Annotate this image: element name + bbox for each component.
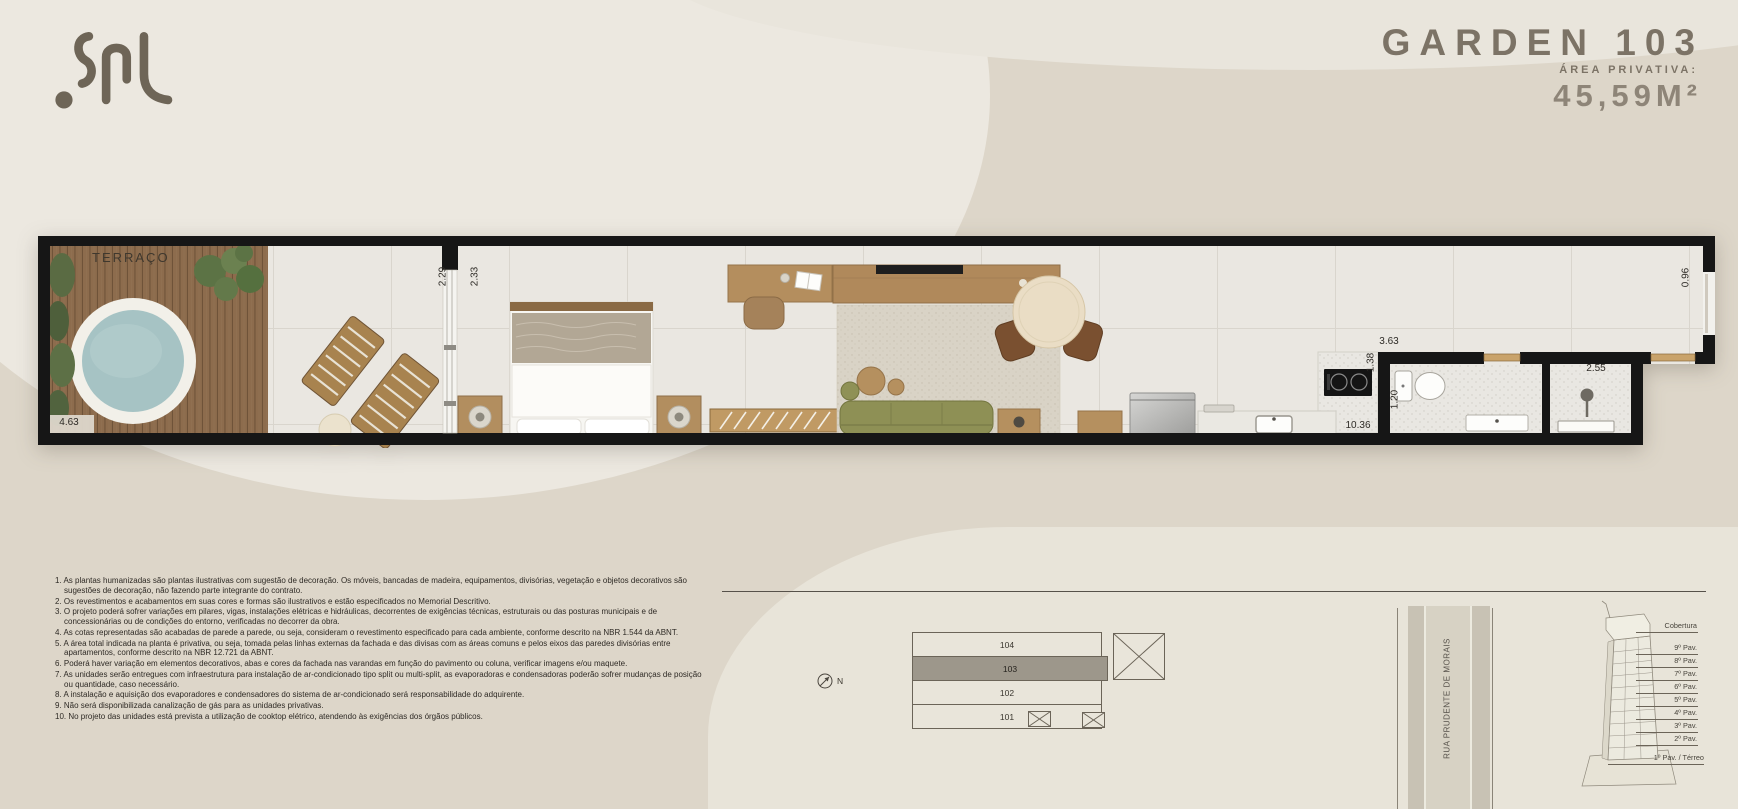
bathroom-door xyxy=(1484,354,1520,361)
north-arrow-icon xyxy=(816,672,834,690)
north-label: N xyxy=(837,676,843,686)
book xyxy=(795,271,822,290)
floor-label: 7º Pav. xyxy=(1636,668,1698,681)
note-item: 9. Não será disponibilizada canalização … xyxy=(55,701,710,711)
bed xyxy=(510,302,653,438)
page-title: GARDEN 103 xyxy=(1382,22,1704,64)
floor-label: 4º Pav. xyxy=(1636,707,1698,720)
washer xyxy=(1558,421,1614,432)
note-item: 6. Poderá haver variação em elementos de… xyxy=(55,659,710,669)
dimension-shower-width: 2.55 xyxy=(1578,363,1614,374)
tray xyxy=(1204,405,1234,412)
floor-label: 5º Pav. xyxy=(1636,694,1698,707)
note-item: 4. As cotas representadas são acabadas d… xyxy=(55,628,710,638)
fridge xyxy=(1130,393,1195,435)
shaft-icon xyxy=(1028,711,1051,727)
disclaimer-notes: 1. As plantas humanizadas são plantas il… xyxy=(55,576,710,723)
dimension-kitchen-depth: 1.38 xyxy=(1366,349,1377,377)
floor-label: 9º Pav. xyxy=(1636,642,1698,655)
area-label: ÁREA PRIVATIVA: xyxy=(1559,64,1698,76)
dimension-terrace-door-left: 2.29 xyxy=(438,263,449,291)
terrace-label: TERRAÇO xyxy=(92,250,170,265)
floor-label: 3º Pav. xyxy=(1636,720,1698,733)
street-edge-line xyxy=(1492,608,1493,809)
desk-chair xyxy=(744,297,784,329)
coffee-table xyxy=(857,367,885,395)
street-name: RUA PRUDENTE DE MORAIS xyxy=(1443,599,1452,799)
floor-labels: Cobertura 9º Pav. 8º Pav. 7º Pav. 6º Pav… xyxy=(1636,620,1698,746)
keyplan-unit-102: 102 xyxy=(912,680,1102,705)
note-item: 10. No projeto das unidades está previst… xyxy=(55,712,710,722)
floor-label: 6º Pav. xyxy=(1636,681,1698,694)
dimension-terrace-door-right: 2.33 xyxy=(470,263,481,291)
side-table-lamp xyxy=(998,409,1040,435)
sal-logo xyxy=(52,26,174,112)
kitchen-cabinet xyxy=(1078,411,1122,435)
stool xyxy=(888,379,904,395)
floor-label: 2º Pav. xyxy=(1636,733,1698,746)
nightstand xyxy=(657,396,701,438)
entry-door xyxy=(1703,272,1715,335)
keyplan-unit-104: 104 xyxy=(912,632,1102,657)
shaft-icon xyxy=(1082,712,1105,728)
glass-sliding-door xyxy=(443,270,457,433)
pouf xyxy=(841,382,859,400)
toilet xyxy=(1395,371,1445,401)
note-item: 8. A instalação e aquisição dos evaporad… xyxy=(55,690,710,700)
floor-label: 8º Pav. xyxy=(1636,655,1698,668)
faucet xyxy=(1272,417,1276,421)
floorplan-drawing xyxy=(38,233,1715,448)
logo-dot xyxy=(55,91,72,108)
dimension-kitchen-width: 3.63 xyxy=(1374,336,1404,347)
dimension-terrace-width: 4.63 xyxy=(52,417,86,428)
floorplan: TERRAÇO 2.29 2.33 3.63 1.38 0.96 2.55 10… xyxy=(38,233,1715,448)
dimension-bathroom-width: 1.20 xyxy=(1390,386,1401,414)
dimension-living-length: 10.36 xyxy=(1336,420,1380,431)
note-item: 1. As plantas humanizadas são plantas il… xyxy=(55,576,710,596)
elevator-core-icon xyxy=(1113,633,1165,680)
tv xyxy=(876,265,963,274)
note-item: 2. Os revestimentos e acabamentos em sua… xyxy=(55,597,710,607)
keyplan-unit-rows: 104 103 102 101 xyxy=(912,633,1108,729)
clothes-rack xyxy=(710,409,842,432)
floor-label-cobertura: Cobertura xyxy=(1636,620,1698,633)
keyplan-unit-101: 101 xyxy=(912,704,1102,729)
floor-label-terreo: 1º Pav. / Térreo xyxy=(1608,752,1704,765)
vanity-sink xyxy=(1466,415,1528,431)
dimension-entry-width: 0.96 xyxy=(1681,264,1692,292)
street-edge-line xyxy=(1397,608,1398,809)
nightstand xyxy=(458,396,502,438)
service-door xyxy=(1651,354,1695,361)
sofa xyxy=(840,401,993,435)
keyplan-unit-103-highlighted: 103 xyxy=(912,656,1108,681)
cup xyxy=(781,274,790,283)
area-value: 45,59M² xyxy=(1553,78,1702,114)
note-item: 5. A área total indicada na planta é pri… xyxy=(55,639,710,659)
note-item: 7. As unidades serão entregues com infra… xyxy=(55,670,710,690)
note-item: 3. O projeto poderá sofrer variações em … xyxy=(55,607,710,627)
pool xyxy=(70,298,196,424)
